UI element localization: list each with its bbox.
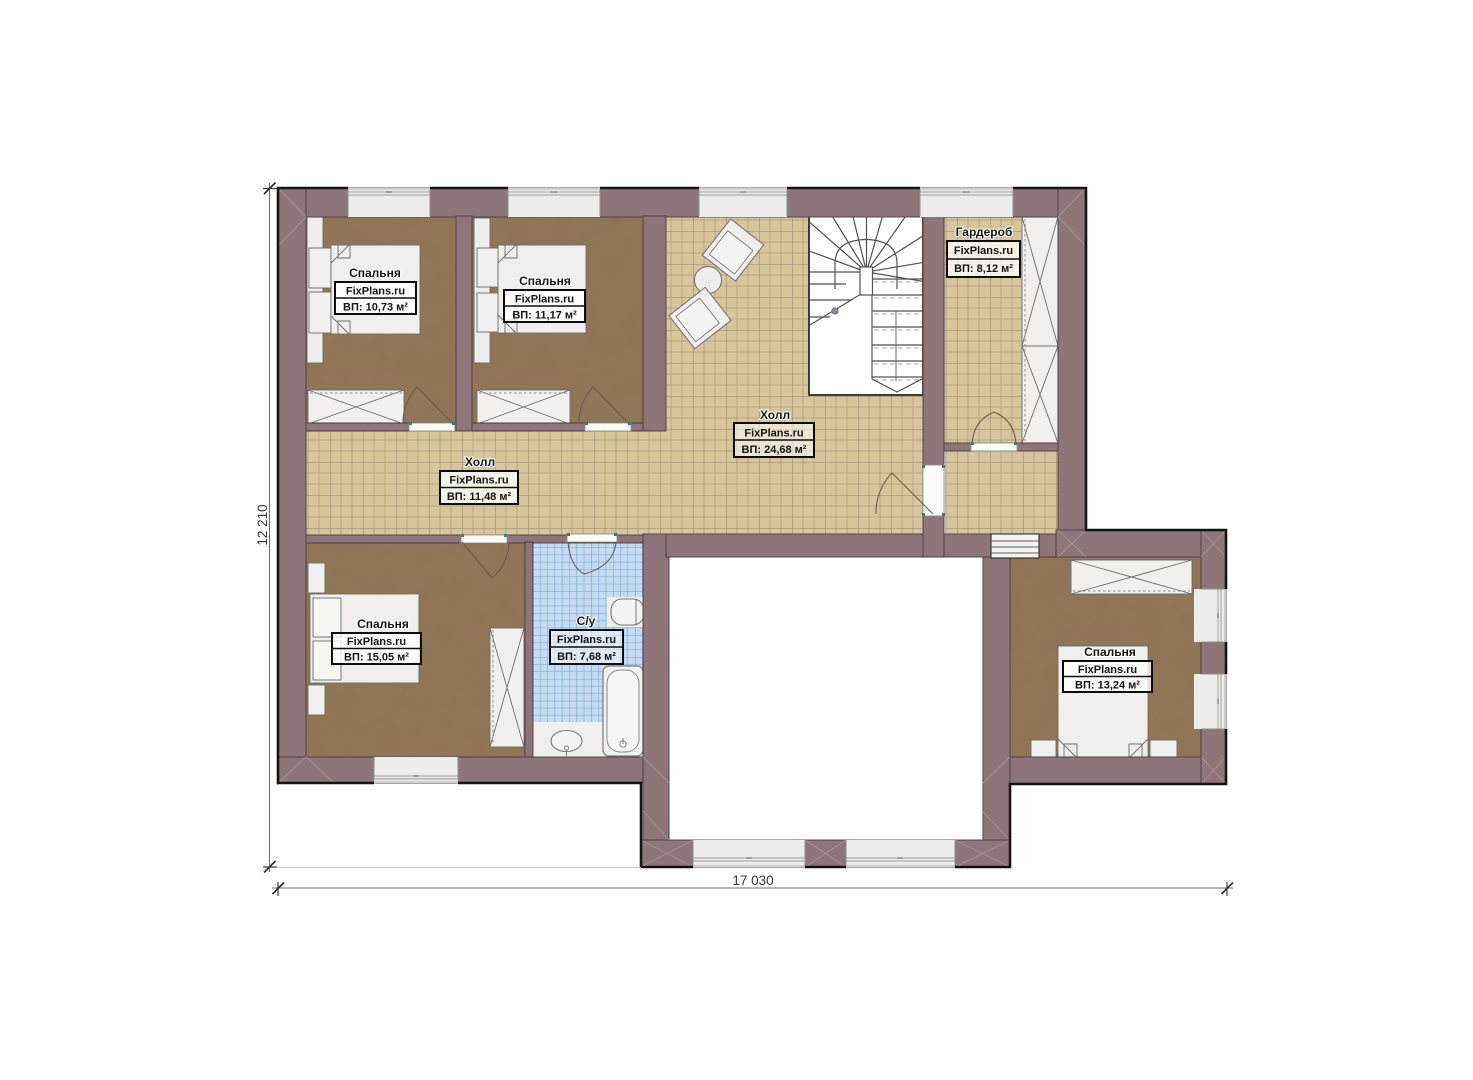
svg-text:Спальня: Спальня — [349, 266, 401, 280]
svg-text:FixPlans.ru: FixPlans.ru — [1078, 664, 1137, 676]
svg-text:Холл: Холл — [465, 455, 495, 469]
svg-text:Спальня: Спальня — [357, 617, 409, 631]
svg-text:ВП: 11,17 м²: ВП: 11,17 м² — [512, 310, 577, 322]
svg-text:Спальня: Спальня — [519, 274, 571, 288]
svg-text:ВП: 13,24 м²: ВП: 13,24 м² — [1075, 680, 1140, 692]
svg-text:FixPlans.ru: FixPlans.ru — [557, 634, 616, 646]
svg-text:17 030: 17 030 — [732, 873, 773, 888]
svg-text:ВП: 7,68 м²: ВП: 7,68 м² — [557, 651, 616, 663]
svg-text:FixPlans.ru: FixPlans.ru — [515, 294, 574, 306]
svg-text:ВП: 8,12 м²: ВП: 8,12 м² — [954, 263, 1013, 275]
svg-text:FixPlans.ru: FixPlans.ru — [954, 245, 1013, 257]
svg-text:12 210: 12 210 — [255, 504, 270, 545]
svg-text:ВП: 11,48 м²: ВП: 11,48 м² — [447, 491, 512, 503]
svg-text:ВП: 10,73 м²: ВП: 10,73 м² — [343, 302, 408, 314]
svg-text:Гардероб: Гардероб — [956, 225, 1013, 239]
svg-text:ВП: 15,05 м²: ВП: 15,05 м² — [344, 652, 409, 664]
svg-text:FixPlans.ru: FixPlans.ru — [449, 475, 508, 487]
svg-text:Спальня: Спальня — [1084, 645, 1136, 659]
svg-text:Холл: Холл — [760, 408, 790, 422]
svg-text:FixPlans.ru: FixPlans.ru — [744, 428, 803, 440]
svg-text:FixPlans.ru: FixPlans.ru — [347, 636, 406, 648]
svg-text:ВП: 24,68 м²: ВП: 24,68 м² — [742, 444, 807, 456]
svg-text:С/у: С/у — [577, 614, 596, 628]
svg-text:FixPlans.ru: FixPlans.ru — [346, 286, 405, 298]
